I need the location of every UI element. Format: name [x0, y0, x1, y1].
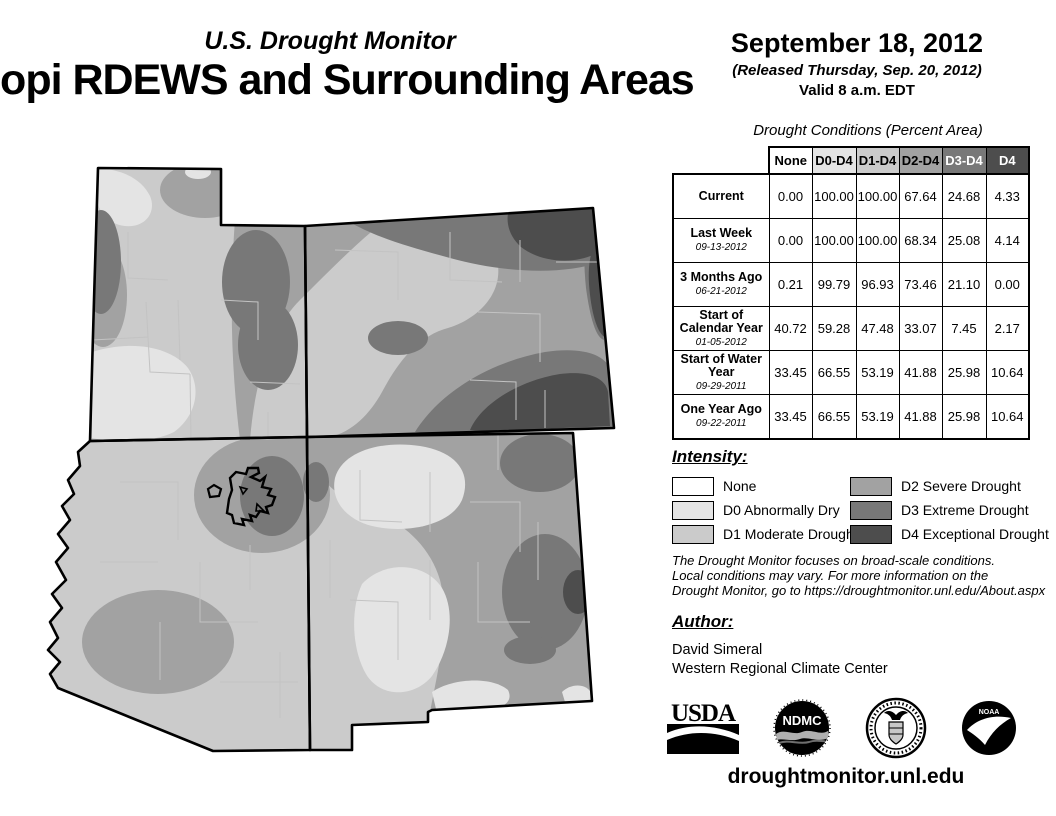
cell-value: 24.68 [942, 174, 986, 219]
intensity-legend: Intensity: None D0 Abnormally Dry D1 Mod… [672, 447, 1032, 546]
cell-value: 25.98 [942, 351, 986, 395]
usda-logo: USDA [666, 700, 740, 756]
cell-value: 10.64 [986, 395, 1029, 440]
drought-map [0, 130, 680, 816]
agency-logos: USDA NDMC NOAA [666, 697, 1018, 759]
intensity-title: Intensity: [672, 447, 1032, 467]
cell-value: 25.98 [942, 395, 986, 440]
map-date: September 18, 2012 [692, 28, 1022, 59]
col-header-d2d4: D2-D4 [899, 147, 942, 174]
author-org: Western Regional Climate Center [672, 661, 888, 677]
row-label: Start of Calendar Year01-05-2012 [673, 307, 769, 351]
drought-conditions-table: None D0-D4 D1-D4 D2-D4 D3-D4 D4 Current … [672, 146, 1030, 440]
col-header-none: None [769, 147, 812, 174]
row-label: Start of Water Year09-29-2011 [673, 351, 769, 395]
date-block: September 18, 2012 (Released Thursday, S… [692, 28, 1022, 99]
row-label: Current [673, 174, 769, 219]
cell-value: 59.28 [812, 307, 856, 351]
d3-swatch [850, 501, 892, 520]
row-label: 3 Months Ago06-21-2012 [673, 263, 769, 307]
cell-value: 66.55 [812, 351, 856, 395]
cell-value: 99.79 [812, 263, 856, 307]
table-row: One Year Ago09-22-2011 33.45 66.55 53.19… [673, 395, 1029, 440]
drought-shading [40, 155, 640, 767]
cell-value: 25.08 [942, 219, 986, 263]
doc-seal-logo [865, 697, 927, 759]
noaa-logo: NOAA [960, 699, 1018, 757]
cell-value: 53.19 [856, 395, 899, 440]
table-corner-cell [673, 147, 769, 174]
cell-value: 4.14 [986, 219, 1029, 263]
cell-value: 33.45 [769, 351, 812, 395]
col-header-d3d4: D3-D4 [942, 147, 986, 174]
table-row: Last Week09-13-2012 0.00 100.00 100.00 6… [673, 219, 1029, 263]
cell-value: 0.00 [769, 174, 812, 219]
cell-value: 33.07 [899, 307, 942, 351]
cell-value: 0.00 [986, 263, 1029, 307]
disclaimer: The Drought Monitor focuses on broad-sca… [672, 553, 1052, 598]
table-row: Start of Water Year09-29-2011 33.45 66.5… [673, 351, 1029, 395]
cell-value: 21.10 [942, 263, 986, 307]
d0-swatch [672, 501, 714, 520]
cell-value: 67.64 [899, 174, 942, 219]
table-header-row: None D0-D4 D1-D4 D2-D4 D3-D4 D4 [673, 147, 1029, 174]
website-url: droughtmonitor.unl.edu [672, 765, 1020, 789]
legend-item-d1: D1 Moderate Drought [672, 522, 850, 546]
ndmc-logo: NDMC [773, 699, 831, 757]
d4-swatch [850, 525, 892, 544]
program-title: U.S. Drought Monitor [120, 27, 540, 56]
table-row: 3 Months Ago06-21-2012 0.21 99.79 96.93 … [673, 263, 1029, 307]
svg-text:NDMC: NDMC [783, 713, 823, 728]
page-title: Hopi RDEWS and Surrounding Areas [0, 56, 694, 105]
cell-value: 41.88 [899, 395, 942, 440]
d1-swatch [672, 525, 714, 544]
cell-value: 66.55 [812, 395, 856, 440]
cell-value: 4.33 [986, 174, 1029, 219]
cell-value: 33.45 [769, 395, 812, 440]
legend-item-none: None [672, 474, 850, 498]
valid-time: Valid 8 a.m. EDT [692, 82, 1022, 99]
col-header-d0d4: D0-D4 [812, 147, 856, 174]
author-title: Author: [672, 612, 888, 632]
svg-text:NOAA: NOAA [979, 709, 1000, 716]
cell-value: 100.00 [812, 219, 856, 263]
cell-value: 0.00 [769, 219, 812, 263]
row-label: One Year Ago09-22-2011 [673, 395, 769, 440]
cell-value: 100.00 [856, 174, 899, 219]
col-header-d4: D4 [986, 147, 1029, 174]
row-label: Last Week09-13-2012 [673, 219, 769, 263]
cell-value: 53.19 [856, 351, 899, 395]
cell-value: 68.34 [899, 219, 942, 263]
cell-value: 7.45 [942, 307, 986, 351]
cell-value: 73.46 [899, 263, 942, 307]
svg-text:USDA: USDA [671, 700, 736, 727]
author-name: David Simeral [672, 642, 888, 658]
cell-value: 0.21 [769, 263, 812, 307]
table-row: Current 0.00 100.00 100.00 67.64 24.68 4… [673, 174, 1029, 219]
cell-value: 10.64 [986, 351, 1029, 395]
cell-value: 40.72 [769, 307, 812, 351]
legend-item-d0: D0 Abnormally Dry [672, 498, 850, 522]
cell-value: 41.88 [899, 351, 942, 395]
legend-item-d3: D3 Extreme Drought [850, 498, 1028, 522]
cell-value: 2.17 [986, 307, 1029, 351]
col-header-d1d4: D1-D4 [856, 147, 899, 174]
table-title: Drought Conditions (Percent Area) [738, 122, 998, 139]
cell-value: 100.00 [856, 219, 899, 263]
released-date: (Released Thursday, Sep. 20, 2012) [692, 62, 1022, 79]
drought-monitor-report: U.S. Drought Monitor Hopi RDEWS and Surr… [0, 0, 1056, 816]
legend-item-d2: D2 Severe Drought [850, 474, 1028, 498]
legend-item-d4: D4 Exceptional Drought [850, 522, 1028, 546]
none-swatch [672, 477, 714, 496]
d2-swatch [850, 477, 892, 496]
cell-value: 47.48 [856, 307, 899, 351]
author-block: Author: David Simeral Western Regional C… [672, 612, 888, 677]
cell-value: 100.00 [812, 174, 856, 219]
table-row: Start of Calendar Year01-05-2012 40.72 5… [673, 307, 1029, 351]
cell-value: 96.93 [856, 263, 899, 307]
